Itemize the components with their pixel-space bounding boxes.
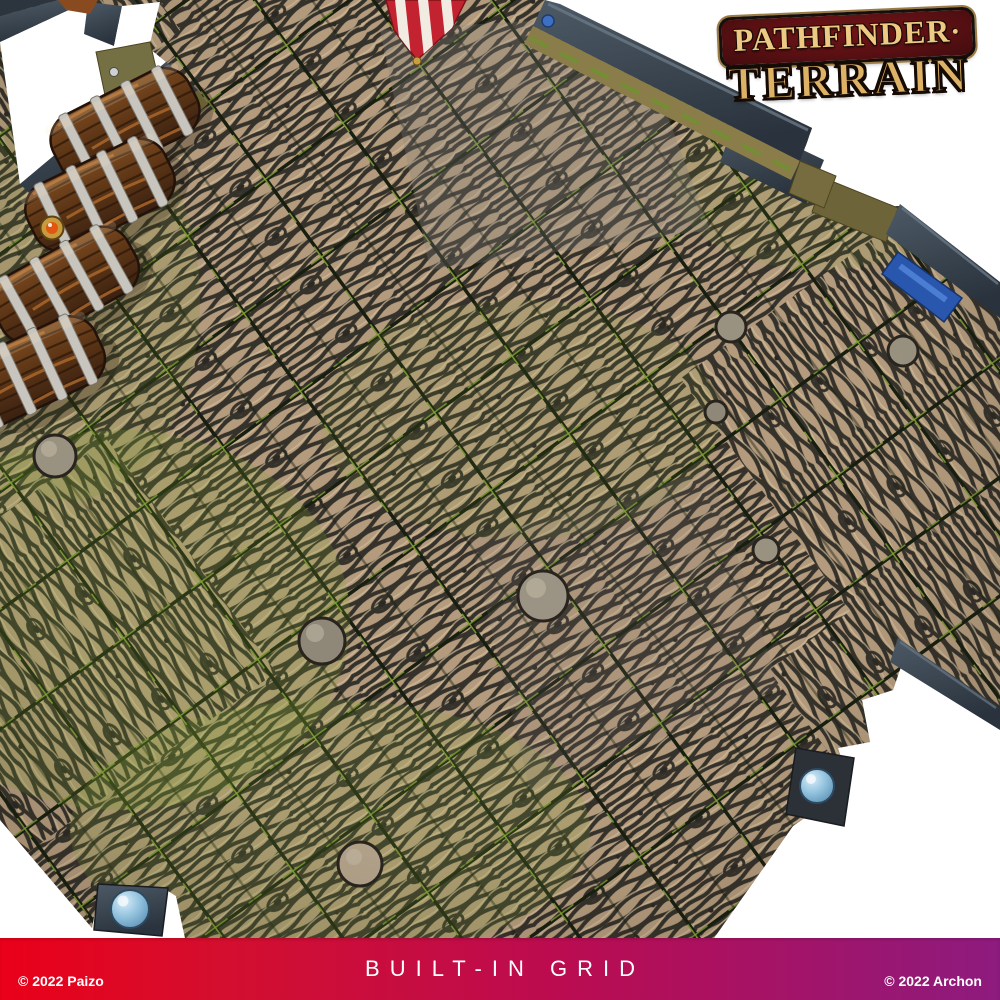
- banner-label: BUILT-IN GRID: [355, 956, 645, 982]
- connector-clip-bottom-left: [94, 884, 168, 936]
- connector-clip-bottom-right: [786, 748, 854, 826]
- logo-line2: TERRAIN: [700, 50, 998, 111]
- connector-gem: [111, 890, 149, 928]
- rivet: [110, 68, 119, 77]
- orange-jewel: [41, 217, 64, 240]
- bottom-banner: © 2022 Paizo BUILT-IN GRID © 2022 Archon: [0, 938, 1000, 1000]
- copyright-archon: © 2022 Archon: [884, 973, 982, 989]
- connector-gem: [800, 769, 834, 803]
- terrain-photo: [0, 0, 1000, 938]
- copyright-paizo: © 2022 Paizo: [18, 973, 104, 989]
- pathfinder-terrain-logo: PATHFINDER· TERRAIN: [698, 6, 998, 111]
- product-image: PATHFINDER· TERRAIN © 2022 Paizo BUILT-I…: [0, 0, 1000, 1000]
- blue-gem-small: [542, 15, 554, 27]
- logo-registered-dot: ·: [950, 15, 961, 48]
